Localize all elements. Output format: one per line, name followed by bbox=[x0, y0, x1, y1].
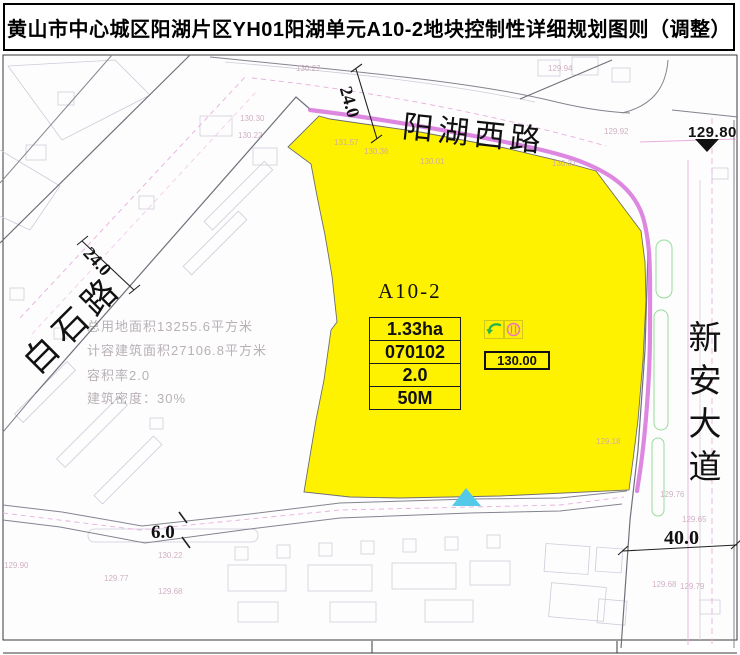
spot-elevation-label: 130.22 bbox=[158, 551, 182, 560]
parcel-far-cell: 2.0 bbox=[370, 363, 460, 386]
entrance-arrow-box bbox=[484, 320, 504, 339]
spot-elevation-label: 129.90 bbox=[4, 561, 28, 570]
info-plot-ratio: 容积率2.0 bbox=[87, 365, 150, 384]
gate-symbol-box bbox=[504, 320, 523, 339]
info-gross-floor-area: 计容建筑面积27106.8平方米 bbox=[87, 340, 267, 359]
info-total-land-area: 总用地面积13255.6平方米 bbox=[87, 316, 253, 335]
parcel-height-limit-cell: 50M bbox=[370, 386, 460, 409]
map-title-bar: 黄山市中心城区阳湖片区YH01阳湖单元A10-2地块控制性详细规划图则（调整） bbox=[3, 3, 735, 51]
entrance-arrow-icon bbox=[485, 321, 503, 338]
spot-elevation-label: 129.79 bbox=[680, 582, 704, 591]
spot-elevation-label: 129.76 bbox=[660, 490, 684, 499]
spot-elevation-label: 130.30 bbox=[240, 114, 264, 123]
planning-map-page: 黄山市中心城区阳湖片区YH01阳湖单元A10-2地块控制性详细规划图则（调整） … bbox=[0, 0, 740, 655]
dim-east-road-width: 40.0 bbox=[664, 527, 699, 550]
spot-elevation-label: 130.01 bbox=[420, 157, 444, 166]
parcel-indicator-table: 1.33ha 070102 2.0 50M bbox=[369, 317, 461, 410]
site-elevation-box: 130.00 bbox=[484, 351, 550, 370]
parcel-a10-2-polygon bbox=[288, 116, 646, 498]
spot-elevation-label: 129.65 bbox=[682, 515, 706, 524]
page-title: 黄山市中心城区阳湖片区YH01阳湖单元A10-2地块控制性详细规划图则（调整） bbox=[7, 13, 731, 42]
spot-elevation-label: 131.57 bbox=[334, 138, 358, 147]
spot-elevation-label: 129.77 bbox=[104, 574, 128, 583]
parcel-landuse-code-cell: 070102 bbox=[370, 340, 460, 363]
spot-elevation-label: 130.22 bbox=[238, 131, 262, 140]
spot-elevation-label: 130.31 bbox=[552, 159, 576, 168]
parcel-area-cell: 1.33ha bbox=[370, 318, 460, 340]
spot-elevation-label: 129.94 bbox=[548, 64, 572, 73]
spot-elevation-label: 130.27 bbox=[296, 64, 320, 73]
road-label-xinan-avenue: 新安大道 bbox=[678, 320, 726, 492]
spot-elevation-label: 130.36 bbox=[364, 147, 388, 156]
spot-elevation-label: 129.68 bbox=[652, 580, 676, 589]
dim-south-lane-width: 6.0 bbox=[151, 522, 175, 544]
spot-elevation-label: 129.18 bbox=[596, 437, 620, 446]
spot-elevation-label: 129.68 bbox=[158, 587, 182, 596]
spot-elevation-label: 129.92 bbox=[604, 127, 628, 136]
info-building-density: 建筑密度：30% bbox=[87, 388, 186, 407]
gate-symbol-icon bbox=[505, 321, 522, 338]
parcel-code-label: A10-2 bbox=[378, 279, 442, 304]
benchmark-elevation-label: 129.80 bbox=[688, 124, 737, 141]
